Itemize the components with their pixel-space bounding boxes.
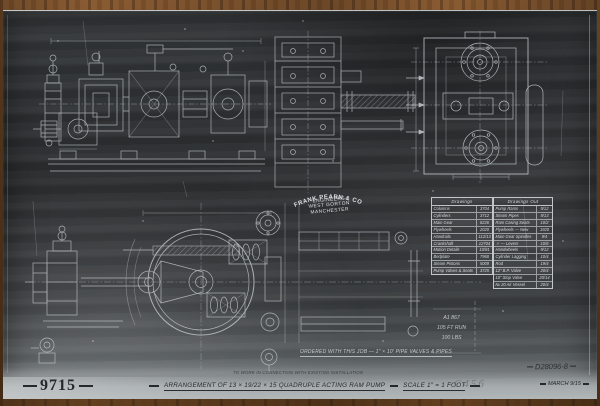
table-cell-part: Handwheels (494, 247, 536, 253)
table-cell-part: Handrails (432, 234, 476, 240)
dash-rule (540, 383, 546, 385)
drawings-table-body: Columns3704Cylinders3712Main Gear8226Fly… (432, 206, 492, 274)
table-row: Rod19/4 (494, 261, 552, 268)
table-cell-number: 3712 (476, 213, 492, 219)
table-cell-number: 9/12 (536, 206, 552, 212)
dash-rule (583, 383, 589, 385)
drawing-date-text: March 9/15 (548, 381, 581, 387)
table-row: Steam Pipes9/13 (494, 213, 552, 220)
table-cell-number: 9/12 (536, 247, 552, 253)
table-cell-number: 9/13 (536, 213, 552, 219)
table-cell-number: 3704 (476, 206, 492, 212)
table-cell-number: 12704 (476, 241, 492, 247)
table-row: 10″ Stop Valve20/14 (494, 275, 552, 282)
table-cell-part: 10″ Stop Valve (494, 275, 536, 281)
drawings-out-table: Drawings Out Pump Rams9/12Steam Pipes9/1… (493, 197, 553, 289)
framed-blueprint-photo: Frank Pearn & Co Ld . Engineers West Gor… (0, 0, 600, 406)
table-cell-part: 12″ B.P. Valve (494, 268, 536, 274)
table-cell-number: 5009 (476, 261, 492, 267)
view-flywheel-elevation (25, 203, 481, 373)
table-cell-part: Rod (494, 261, 536, 267)
table-row: Handrails112/13 (432, 234, 492, 241)
table-row: 〃 — Levers10/6 (494, 241, 552, 248)
connection-note: To work in connection with existing inst… (233, 370, 363, 375)
drawings-out-table-header: Drawings Out (494, 198, 552, 206)
table-row: Columns3704 (432, 206, 492, 213)
view-end-elevation (406, 31, 548, 183)
dash-rule (149, 385, 159, 387)
table-cell-number: 10/81 (476, 247, 492, 253)
table-cell-part: Pump Rams (494, 206, 536, 212)
table-cell-part: Steam Pistons (432, 261, 476, 267)
drawings-table: Drawings Columns3704Cylinders3712Main Ge… (431, 197, 493, 275)
dash-rule (23, 385, 37, 387)
table-row: Motion Details10/81 (432, 247, 492, 254)
table-cell-part: Columns (432, 206, 476, 212)
table-cell-part: Ram Casing Seats (494, 220, 536, 226)
photo-right-edge (589, 15, 590, 375)
table-row: Flywheels — New1920 (494, 227, 552, 234)
dash-rule (527, 366, 533, 368)
table-cell-part: Flywheels — New (494, 227, 536, 233)
photostat-negative: Frank Pearn & Co Ld . Engineers West Gor… (3, 10, 597, 398)
drawing-date: March 9/15 (540, 381, 589, 387)
table-cell-number: 1920 (536, 227, 552, 233)
table-cell-part: Steam Pipes (494, 213, 536, 219)
duty-line-3: 100 Lbs (437, 333, 466, 343)
table-cell-number: 10/4 (536, 254, 552, 260)
table-cell-number: 20/14 (536, 275, 552, 281)
table-row: Main Gear8226 (432, 220, 492, 227)
table-cell-number: 9/4 (536, 234, 552, 240)
table-row: Crankshaft12704 (432, 241, 492, 248)
table-cell-number: 10/2 (536, 220, 552, 226)
table-cell-number: 10/6 (536, 241, 552, 247)
table-row: Flywheels2020 (432, 227, 492, 234)
dust-specks (57, 20, 563, 342)
table-cell-number: 8226 (476, 220, 492, 226)
table-row: Handwheels9/12 (494, 247, 552, 254)
negative-number: D28096-8 (527, 362, 576, 372)
pencil-mark: C456 (454, 378, 486, 390)
table-row: Cylinder Lagging10/4 (494, 254, 552, 261)
drawings-out-table-body: Pump Rams9/12Steam Pipes9/13Ram Casing S… (494, 206, 552, 288)
table-cell-number: 19/4 (536, 261, 552, 267)
duty-line-2: 105 Ft Run (437, 323, 466, 333)
table-row: 12″ B.P. Valve20/4 (494, 268, 552, 275)
table-row: Steam Pistons5009 (432, 261, 492, 268)
drawing-number: 9715 (23, 377, 93, 395)
view-plan (275, 31, 415, 193)
drawings-table-header: Drawings (432, 198, 492, 206)
drawing-number-text: 9715 (40, 377, 76, 395)
photo-left-edge (7, 15, 8, 373)
table-cell-part: Flywheels (432, 227, 476, 233)
table-cell-part: Main Gear (432, 220, 476, 226)
table-row: Bedplate7968 (432, 254, 492, 261)
table-cell-number: 20/4 (536, 282, 552, 288)
table-cell-part: № 20 Air Vessel (494, 282, 536, 288)
negative-number-text: D28096-8 (535, 362, 568, 372)
table-cell-part: Bedplate (432, 254, 476, 260)
table-cell-part: Cylinders (432, 213, 476, 219)
table-row: № 20 Air Vessel20/4 (494, 282, 552, 288)
table-cell-number: 7968 (476, 254, 492, 260)
duty-annotation: A1 867 105 Ft Run 100 Lbs (437, 313, 466, 343)
table-cell-part: Cylinder Lagging (494, 254, 536, 260)
dash-rule (79, 385, 93, 387)
dash-rule (570, 365, 576, 367)
table-cell-part: 〃 — Levers (494, 241, 536, 247)
table-cell-number: 20/4 (536, 268, 552, 274)
table-row: Pump Valves & Seats3725 (432, 268, 492, 274)
title-line: Arrangement of 13 × 19/22 × 15 Quadruple… (149, 382, 480, 391)
duty-line-1: A1 867 (437, 313, 466, 323)
table-cell-number: 3725 (476, 268, 492, 274)
table-cell-number: 112/13 (476, 234, 492, 240)
table-row: Pump Rams9/12 (494, 206, 552, 213)
table-row: Cylinders3712 (432, 213, 492, 220)
table-cell-part: Main Gear Spindles (494, 234, 536, 240)
dash-rule (390, 385, 398, 387)
table-row: Main Gear Spindles9/4 (494, 234, 552, 241)
table-row: Ram Casing Seats10/2 (494, 220, 552, 227)
table-cell-number: 2020 (476, 227, 492, 233)
ordered-note: Ordered with this job — 1″ × 10′ Pipe Va… (300, 349, 452, 357)
table-cell-part: Crankshaft (432, 241, 476, 247)
drawing-title: Arrangement of 13 × 19/22 × 15 Quadruple… (164, 382, 385, 391)
table-cell-part: Pump Valves & Seats (432, 268, 476, 274)
view-side-elevation (33, 38, 271, 171)
table-cell-part: Motion Details (432, 247, 476, 253)
